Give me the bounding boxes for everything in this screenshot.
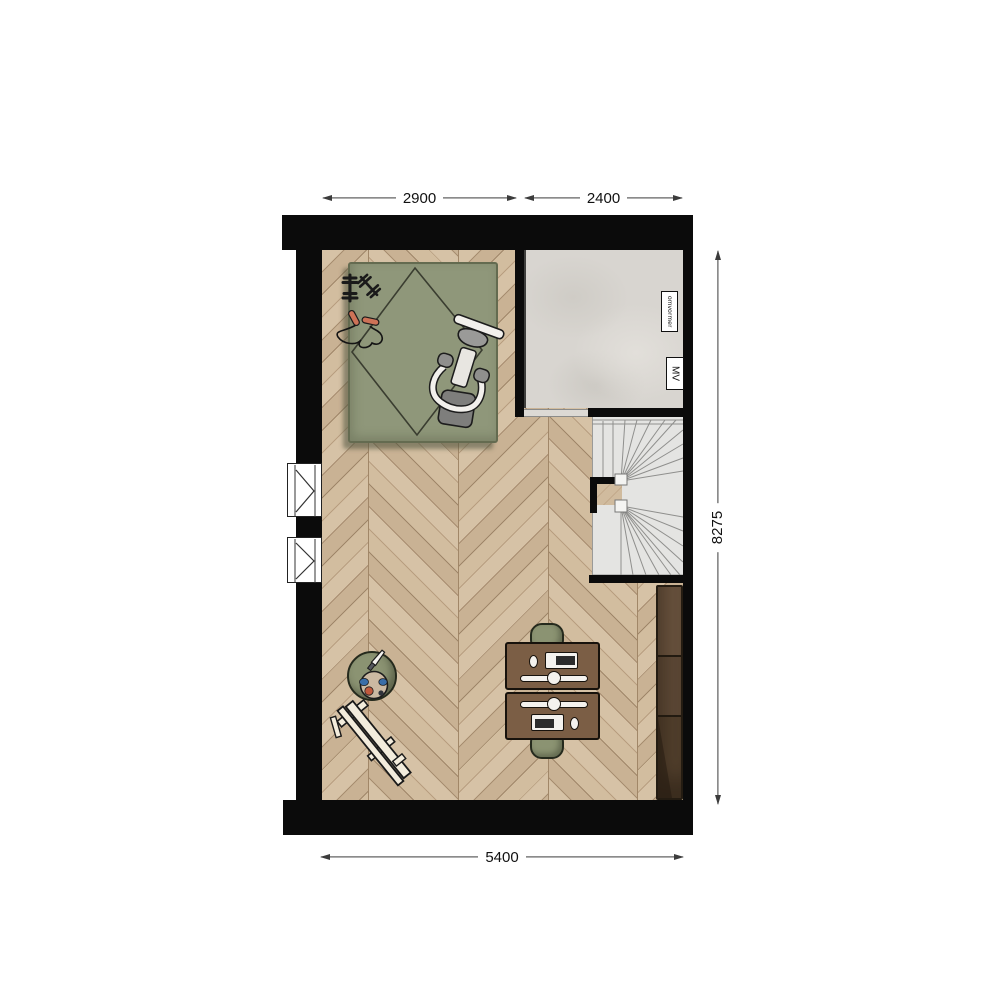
wall-bottom [283,800,693,835]
dimension-top-left: 2900 [322,190,517,206]
dumbbells-icon [343,272,382,301]
exercise-bike-icon [420,312,506,434]
window-glyph [288,464,323,518]
wall-left [296,250,322,800]
dimension-top-right: 2400 [524,190,683,206]
wall-stair-bottom [589,575,683,583]
wall-tech-divider [515,250,524,417]
easel-icon [324,694,419,797]
paint-palette-icon [360,650,388,699]
arrow-right-icon [674,854,684,860]
floor-plan-canvas: omvormer MV 2900 2400 8275 5400 [0,0,1000,1000]
arrow-down-icon [715,795,721,805]
dimension-value: 8275 [710,503,727,552]
stair-walls [590,474,627,513]
arrow-up-icon [715,250,721,260]
arrow-left-icon [322,195,332,201]
jump-rope-icon [337,310,382,348]
stair-treads [592,420,683,575]
arrow-right-icon [507,195,517,201]
wall-tech-bottom [588,408,683,417]
window-bottom [287,537,322,583]
arrow-right-icon [673,195,683,201]
window-top [287,463,322,517]
arrow-left-icon [524,195,534,201]
wall-top [282,215,693,250]
arrow-left-icon [320,854,330,860]
dimension-right: 8275 [710,250,726,805]
dimension-value: 5400 [478,849,525,866]
dimension-value: 2900 [396,190,443,207]
dimension-value: 2400 [580,190,627,207]
sideboard-shadow [658,718,672,798]
dimension-bottom: 5400 [320,849,684,865]
window-glyph [288,538,323,584]
mv-label: MV [666,357,684,390]
inverter-label: omvormer [661,291,678,332]
wall-right [683,250,693,800]
